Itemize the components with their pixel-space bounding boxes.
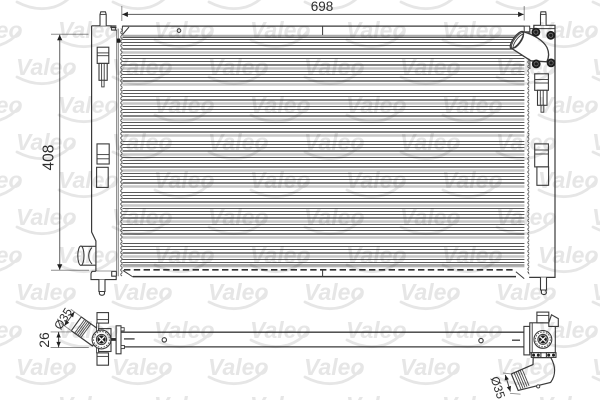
svg-text:26: 26 — [36, 332, 52, 348]
